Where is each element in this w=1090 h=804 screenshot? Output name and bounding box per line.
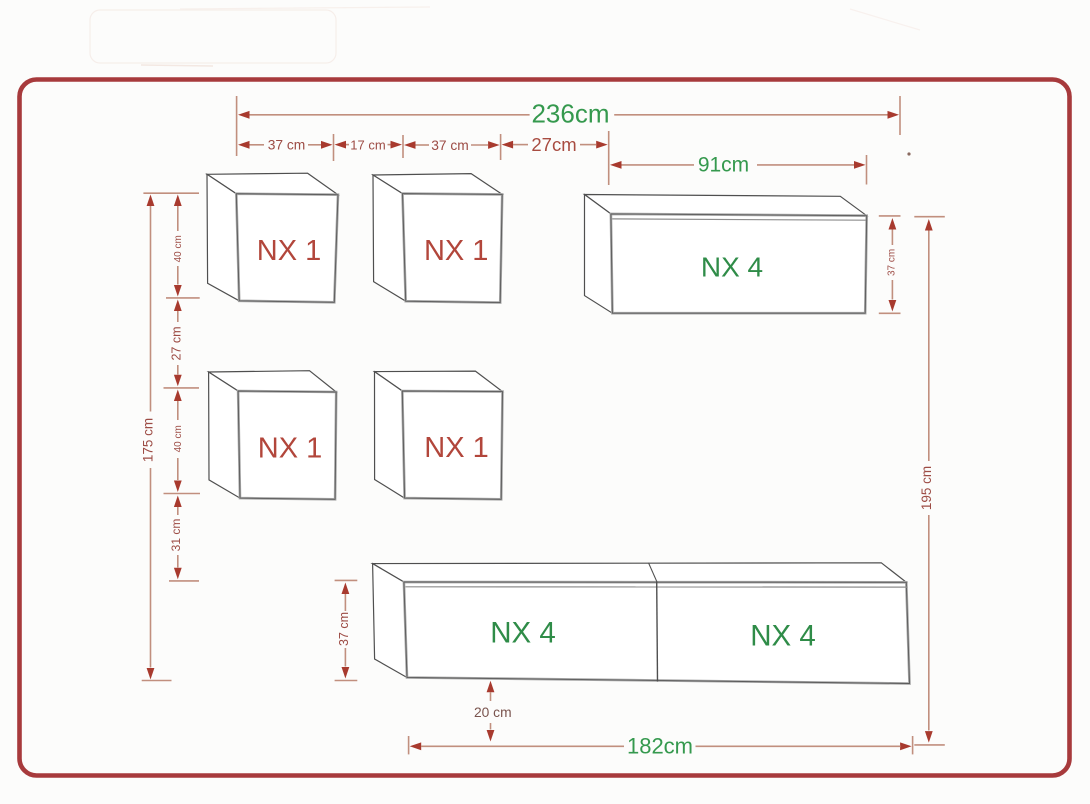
svg-text:17 cm: 17 cm: [350, 137, 385, 152]
svg-text:27cm: 27cm: [531, 134, 576, 155]
svg-text:27 cm: 27 cm: [170, 326, 184, 360]
svg-text:NX 4: NX 4: [750, 620, 816, 653]
svg-text:37 cm: 37 cm: [268, 138, 306, 153]
svg-text:91cm: 91cm: [698, 153, 749, 176]
svg-text:195 cm: 195 cm: [919, 466, 934, 510]
svg-text:NX 4: NX 4: [701, 252, 763, 283]
svg-text:40 cm: 40 cm: [173, 235, 184, 262]
svg-text:NX 4: NX 4: [490, 617, 556, 650]
svg-text:NX 1: NX 1: [257, 235, 321, 267]
svg-text:40 cm: 40 cm: [173, 425, 184, 452]
svg-text:31 cm: 31 cm: [169, 519, 183, 552]
svg-text:NX 1: NX 1: [424, 235, 488, 267]
svg-text:NX 1: NX 1: [258, 432, 322, 464]
svg-text:182cm: 182cm: [627, 734, 693, 759]
svg-text:37 cm: 37 cm: [337, 612, 351, 646]
svg-text:NX 1: NX 1: [424, 432, 488, 464]
svg-text:37 cm: 37 cm: [886, 249, 897, 276]
svg-text:20 cm: 20 cm: [474, 705, 512, 720]
svg-text:236cm: 236cm: [531, 98, 609, 128]
svg-text:175 cm: 175 cm: [141, 418, 156, 462]
svg-text:37 cm: 37 cm: [431, 138, 469, 153]
